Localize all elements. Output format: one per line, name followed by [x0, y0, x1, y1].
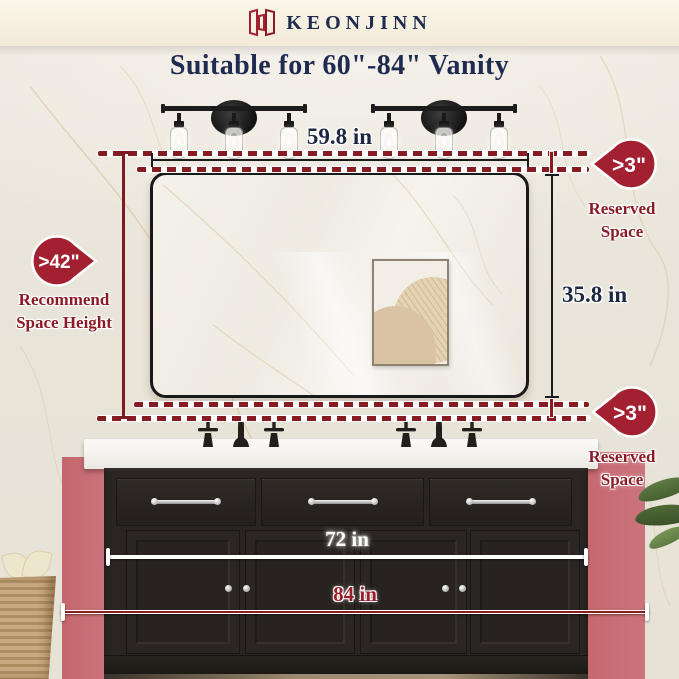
vanity-cabinet — [104, 468, 588, 674]
guide-line-mirror-top — [136, 166, 590, 173]
reserved-space-top-label: Reserved Space — [565, 197, 679, 243]
mirror-artwork-reflection — [372, 259, 449, 366]
reserved-bottom-connector — [550, 399, 553, 417]
brand-band: KEONJINN — [0, 0, 679, 46]
light-bar-icon — [163, 106, 305, 111]
reserved-top-value: >3" — [612, 154, 646, 177]
guide-line-mirror-bottom — [133, 401, 590, 408]
space-height-value: >42" — [38, 252, 79, 273]
space-height-label: Recommend Space Height — [0, 288, 128, 334]
drawer-handle — [469, 500, 533, 504]
cabinet-base — [104, 655, 588, 674]
mirror-width-dimension-line — [151, 159, 529, 161]
drawer-handle — [154, 500, 218, 504]
reserved-space-bottom-badge: >3" — [589, 380, 659, 444]
drawer — [429, 478, 572, 526]
vanity-width-dimension-line — [106, 555, 588, 559]
drawer — [261, 478, 424, 526]
basket-fabric — [2, 548, 54, 580]
light-bar-icon — [373, 106, 515, 111]
headline: Suitable for 60"-84" Vanity — [0, 50, 679, 82]
vanity-countertop — [84, 439, 598, 469]
reserved-space-top-badge: >3" — [588, 132, 658, 196]
guide-line-top-outer — [97, 150, 591, 157]
reserved-space-bottom-label: Reserved Space — [565, 445, 679, 491]
reserved-top-connector — [550, 152, 553, 173]
reserved-bottom-value: >3" — [613, 402, 647, 425]
max-width-label: 84 in — [61, 582, 649, 607]
drawer-handle — [311, 500, 375, 504]
space-height-bracket — [122, 151, 125, 419]
mirror-light-streak — [150, 252, 529, 398]
drawer — [116, 478, 256, 526]
mirror-width-label: 59.8 in — [150, 124, 529, 150]
guide-line-bottom-outer — [96, 415, 591, 422]
max-width-dimension-line — [61, 610, 649, 614]
woven-basket — [0, 576, 56, 679]
vanity-mirror — [150, 172, 529, 398]
brand-name: KEONJINN — [286, 12, 432, 35]
product-infographic: KEONJINN Suitable for 60"-84" Vanity — [0, 0, 679, 679]
space-height-badge: >42" — [30, 229, 100, 293]
mirror-height-label: 35.8 in — [562, 282, 627, 308]
brand-logo-icon — [247, 8, 277, 38]
floor-strip — [104, 674, 588, 679]
accent-wall-left — [62, 457, 108, 679]
vanity-width-label: 72 in — [106, 527, 588, 552]
mirror-height-dimension-line — [551, 174, 553, 398]
